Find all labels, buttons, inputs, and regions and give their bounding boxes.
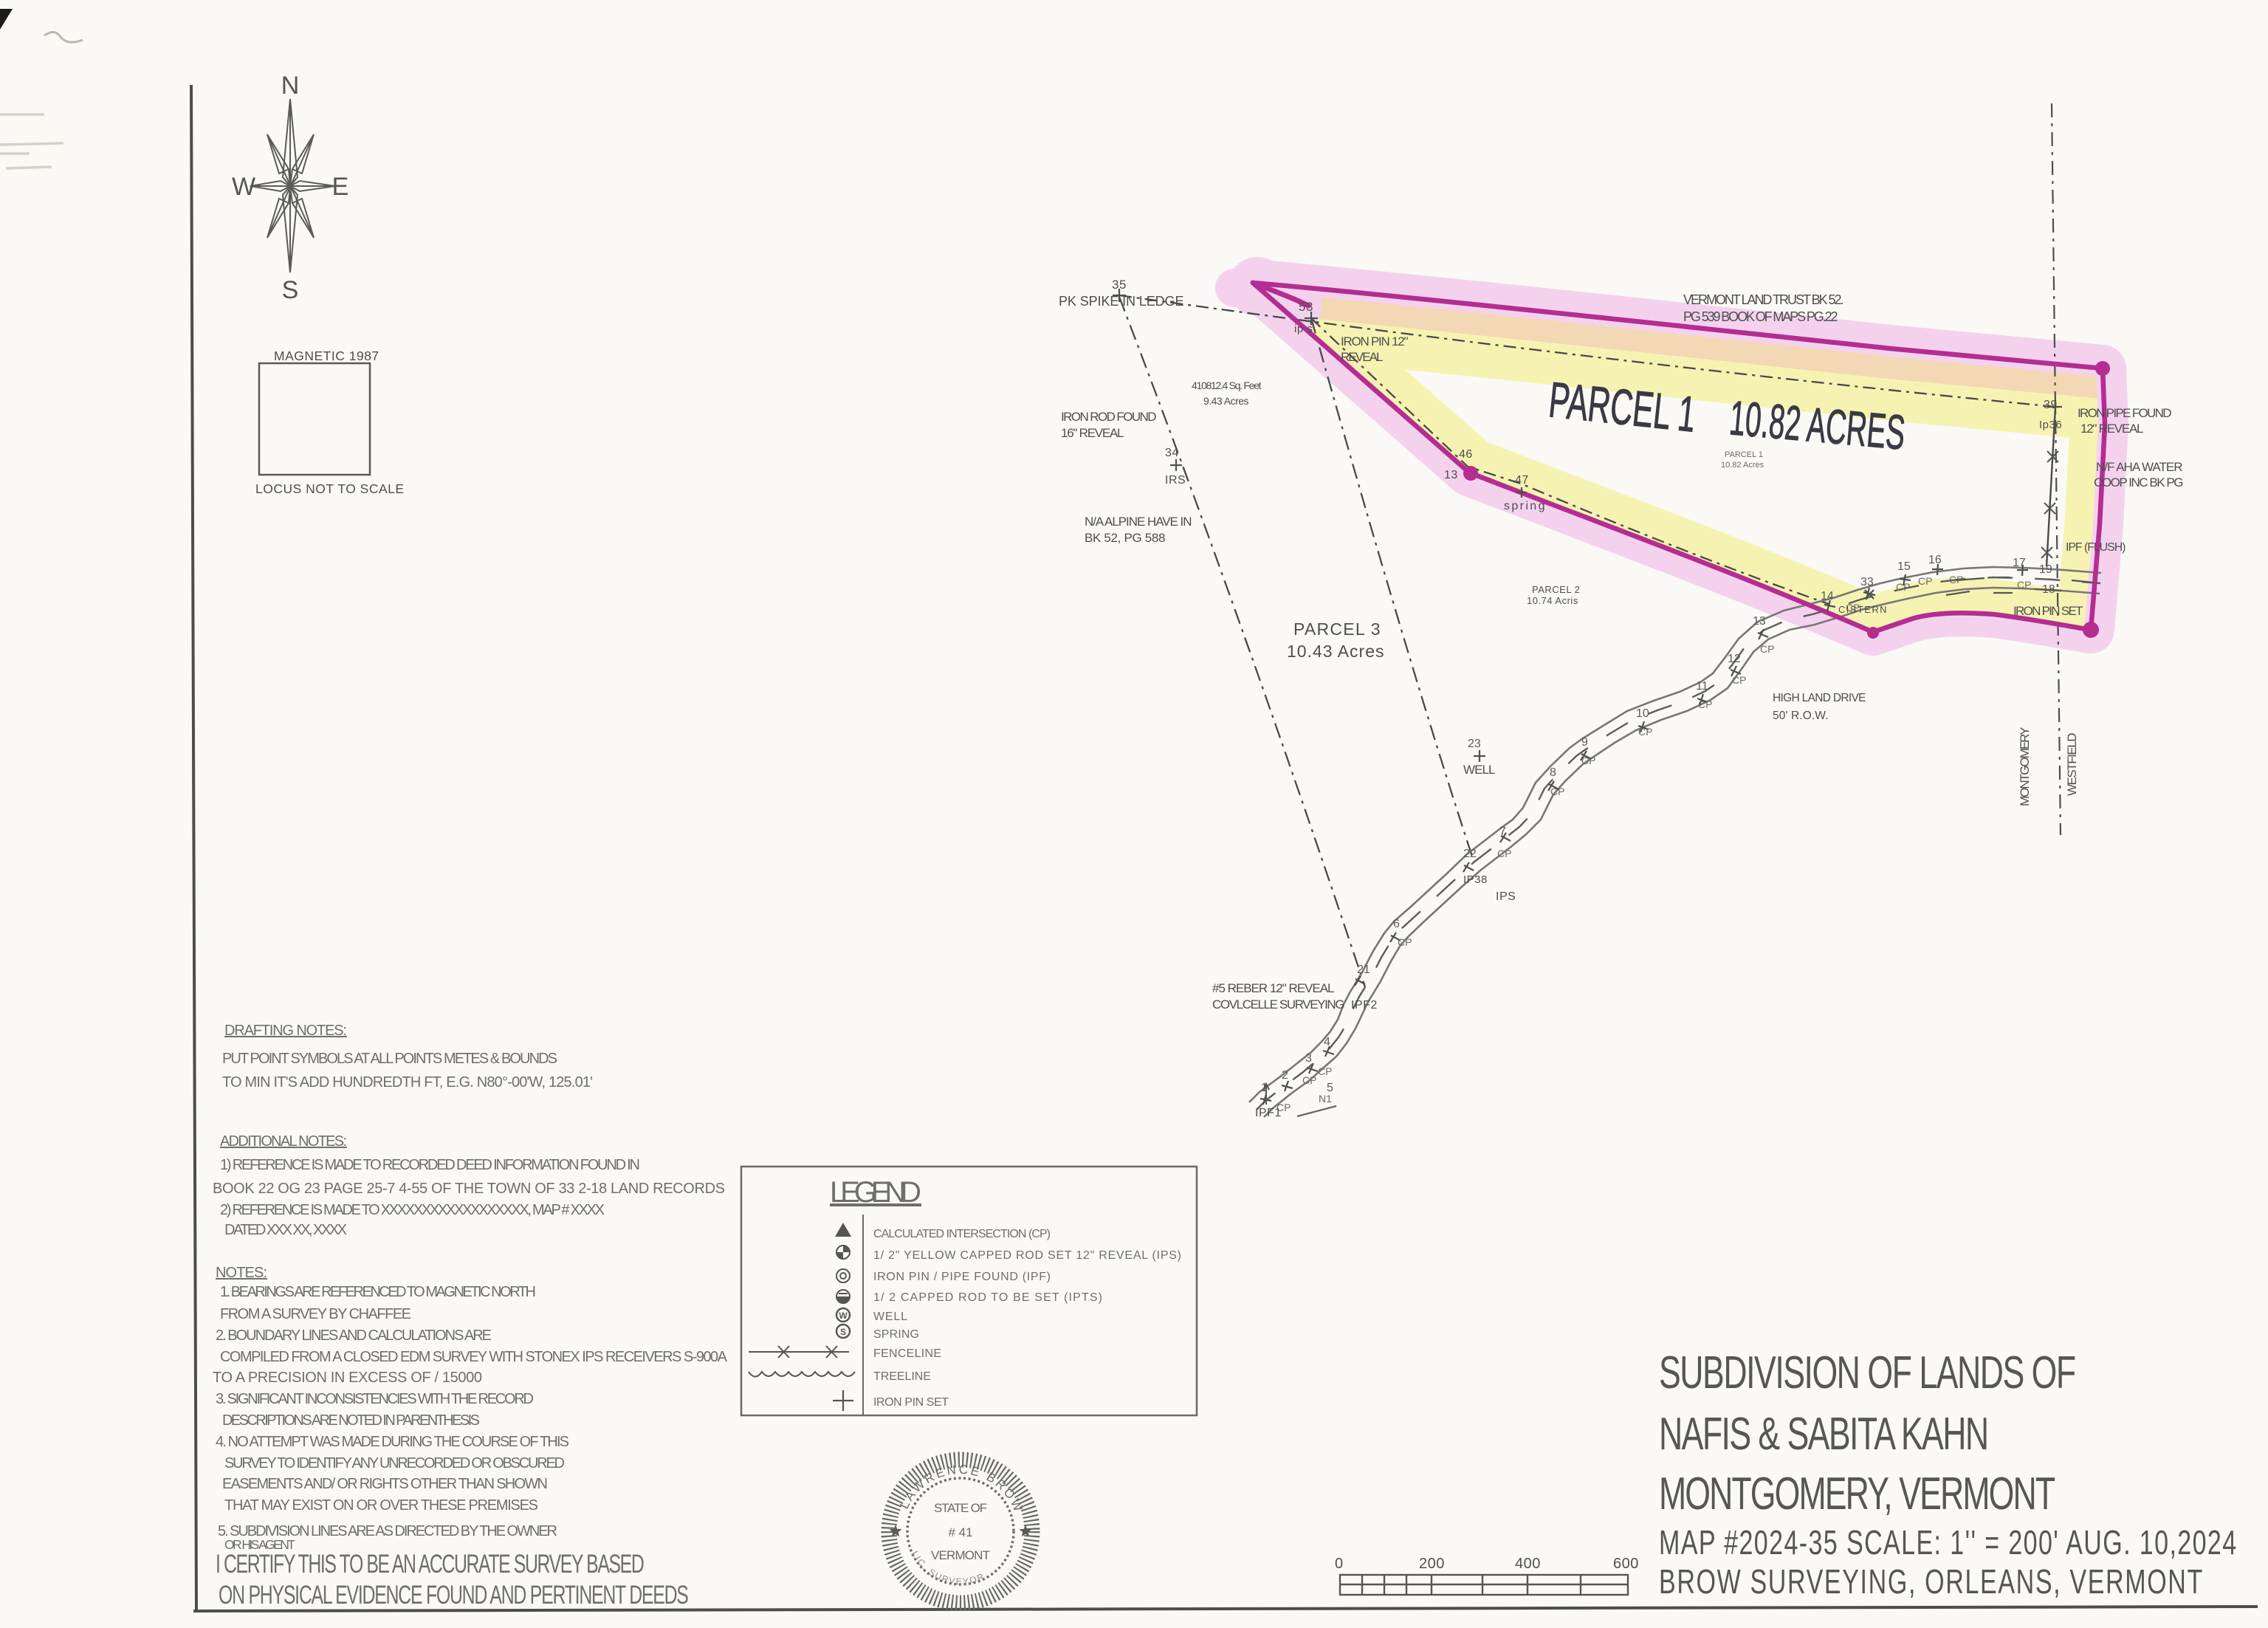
svg-text:13: 13 [1753,615,1766,628]
svg-text:IRON PIN 12": IRON PIN 12" [1341,334,1409,348]
svg-text:COMPILED FROM A CLOSED EDM SUR: COMPILED FROM A CLOSED EDM SURVEY WITH S… [220,1349,728,1365]
svg-text:410812.4 Sq. Feet: 410812.4 Sq. Feet [1192,379,1262,391]
svg-text:ADDITIONAL NOTES:: ADDITIONAL NOTES: [220,1133,347,1150]
svg-text:IRON PIN SET: IRON PIN SET [2013,604,2083,618]
svg-text:23: 23 [1468,738,1481,750]
svg-text:1. BEARINGS ARE REFERENCED TO: 1. BEARINGS ARE REFERENCED TO MAGNETIC N… [220,1284,536,1300]
svg-text:CP: CP [1760,643,1774,655]
svg-text:2. BOUNDARY LINES AND CALCULAT: 2. BOUNDARY LINES AND CALCULATIONS ARE [216,1328,492,1344]
svg-text:CP: CP [1581,755,1595,766]
svg-text:CP: CP [1302,1074,1316,1086]
svg-text:1) REFERENCE IS MADE TO RECORD: 1) REFERENCE IS MADE TO RECORDED DEED IN… [220,1157,640,1173]
svg-text:S: S [282,276,299,304]
svg-text:SPRING: SPRING [873,1328,919,1341]
svg-text:BK 52, PG 588: BK 52, PG 588 [1085,531,1166,545]
svg-text:DESCRIPTIONS ARE NOTED IN PARE: DESCRIPTIONS ARE NOTED IN PARENTHESIS [222,1412,480,1429]
svg-text:PARCEL 1: PARCEL 1 [1725,450,1763,459]
svg-text:VERMONT: VERMONT [931,1548,990,1562]
svg-text:47: 47 [1515,474,1529,487]
svg-text:14: 14 [1821,590,1834,602]
svg-text:PARCEL 3: PARCEL 3 [1293,619,1381,639]
svg-text:19: 19 [2039,563,2052,576]
svg-text:21: 21 [1357,964,1370,976]
svg-text:IPS: IPS [1496,890,1516,903]
svg-text:IRON PIPE FOUND: IRON PIPE FOUND [2078,406,2172,420]
svg-text:NAFIS & SABITA KAHN: NAFIS & SABITA KAHN [1659,1409,1989,1460]
svg-text:Ip36: Ip36 [2039,419,2062,431]
svg-text:PG 539 BOOK OF MAPS PG.22: PG 539 BOOK OF MAPS PG.22 [1683,309,1838,324]
svg-text:9: 9 [1581,736,1588,749]
svg-text:N/A ALPINE HAVE IN: N/A ALPINE HAVE IN [1085,515,1192,529]
svg-text:16: 16 [1928,554,1942,566]
svg-text:W: W [232,173,255,201]
svg-text:11: 11 [1696,680,1708,693]
svg-text:VERMONT LAND TRUST BK 52.: VERMONT LAND TRUST BK 52. [1683,292,1844,307]
svg-text:CP: CP [1497,848,1511,859]
svg-text:NOTES:: NOTES: [216,1265,267,1281]
svg-text:#5 REBER 12" REVEAL: #5 REBER 12" REVEAL [1212,981,1335,995]
svg-text:# 41: # 41 [948,1525,972,1539]
svg-text:CP: CP [1732,674,1746,686]
svg-text:N: N [281,72,300,100]
svg-text:HIGH LAND DRIVE: HIGH LAND DRIVE [1773,692,1866,704]
svg-text:COVLCELLE SURVEYING: COVLCELLE SURVEYING [1212,997,1345,1012]
svg-text:WESTFIELD: WESTFIELD [2065,732,2079,796]
svg-text:N/F AHA WATER: N/F AHA WATER [2096,460,2183,474]
svg-text:CP: CP [1638,726,1652,738]
svg-text:ON PHYSICAL EVIDENCE FOUND AND: ON PHYSICAL EVIDENCE FOUND AND PERTINENT… [219,1581,689,1610]
svg-text:10.74 Acris: 10.74 Acris [1527,595,1578,606]
svg-text:IRON PIN SET: IRON PIN SET [873,1396,949,1409]
svg-text:15: 15 [1897,560,1911,573]
svg-text:COOP INC BK PG: COOP INC BK PG [2094,475,2184,490]
svg-text:IP38: IP38 [1463,873,1488,886]
svg-text:IPF1: IPF1 [1255,1107,1282,1119]
svg-text:12" REVEAL: 12" REVEAL [2080,422,2144,436]
svg-text:E: E [332,173,349,201]
svg-text:10.82 Acres: 10.82 Acres [1721,461,1764,470]
svg-text:46: 46 [1459,448,1473,461]
svg-text:200: 200 [1419,1556,1445,1572]
svg-text:35: 35 [1112,278,1127,292]
svg-text:33: 33 [1860,576,1874,588]
svg-text:REVEAL: REVEAL [1341,350,1384,364]
svg-text:22: 22 [1463,848,1477,860]
svg-text:BOOK 22 OG 23 PAGE 25-7 4-55 O: BOOK 22 OG 23 PAGE 25-7 4-55 OF THE TOWN… [213,1181,725,1197]
svg-text:ip s: ip s [1294,323,1313,335]
svg-text:IRON PIN / PIPE FOUND (IPF): IRON PIN / PIPE FOUND (IPF) [873,1271,1051,1283]
svg-text:IRS: IRS [1165,474,1186,487]
svg-text:34: 34 [1165,447,1179,459]
svg-text:FROM A SURVEY BY CHAFFEE: FROM A SURVEY BY CHAFFEE [220,1306,411,1322]
svg-text:7: 7 [1499,825,1506,838]
svg-text:TREELINE: TREELINE [873,1370,931,1383]
svg-text:CP: CP [1398,936,1412,948]
svg-text:CP: CP [1550,786,1564,797]
svg-text:CISTERN: CISTERN [1838,604,1887,615]
svg-text:13: 13 [1444,469,1458,481]
svg-text:16" REVEAL: 16" REVEAL [1061,426,1124,440]
svg-text:MONTGOMERY: MONTGOMERY [2018,727,2032,806]
svg-text:N1: N1 [1319,1093,1332,1105]
svg-text:CALCULATED INTERSECTION (CP): CALCULATED INTERSECTION (CP) [873,1228,1051,1240]
svg-text:600: 600 [1613,1556,1639,1572]
svg-text:S: S [840,1327,846,1337]
svg-text:8: 8 [1550,766,1556,779]
svg-text:4: 4 [1324,1036,1330,1048]
svg-text:1/ 2" YELLOW CAPPED ROD SET 12: 1/ 2" YELLOW CAPPED ROD SET 12" REVEAL (… [873,1249,1181,1262]
svg-text:DATED XXX XX, XXXX: DATED XXX XX, XXXX [224,1222,347,1238]
svg-text:IPF2: IPF2 [1351,999,1378,1012]
svg-text:BROW SURVEYING, ORLEANS, VERMO: BROW SURVEYING, ORLEANS, VERMONT [1659,1562,2202,1601]
svg-text:2) REFERENCE IS MADE TO XXXXXX: 2) REFERENCE IS MADE TO XXXXXXXXXXXXXXXX… [220,1202,605,1218]
svg-text:IPF (FLUSH): IPF (FLUSH) [2066,541,2126,554]
svg-text:LEGEND: LEGEND [830,1176,921,1209]
svg-text:WELL: WELL [873,1311,907,1323]
svg-text:STATE OF: STATE OF [934,1501,987,1515]
svg-text:400: 400 [1515,1556,1541,1572]
svg-text:OR HIS AGENT: OR HIS AGENT [224,1537,295,1552]
svg-text:53: 53 [1299,300,1313,314]
svg-text:FENCELINE: FENCELINE [873,1347,941,1360]
svg-text:CP: CP [1318,1065,1332,1077]
svg-text:EASEMENTS AND/ OR RIGHTS OTHER: EASEMENTS AND/ OR RIGHTS OTHER THAN SHOW… [222,1476,548,1492]
svg-text:TO A PRECISION IN EXCESS OF /: TO A PRECISION IN EXCESS OF / 15000 [213,1370,482,1386]
svg-text:9.43 Acres: 9.43 Acres [1203,395,1249,407]
svg-text:THAT MAY EXIST ON OR OVER THES: THAT MAY EXIST ON OR OVER THESE PREMISES [224,1497,538,1514]
svg-text:3: 3 [1305,1052,1312,1065]
svg-text:CP: CP [1698,698,1712,710]
svg-text:SUBDIVISION OF LANDS OF: SUBDIVISION OF LANDS OF [1659,1347,2076,1398]
svg-text:50' R.O.W.: 50' R.O.W. [1773,710,1829,722]
svg-text:6: 6 [1393,918,1400,930]
svg-text:10: 10 [1636,707,1649,720]
svg-text:2: 2 [1282,1069,1288,1082]
svg-text:IRON ROD FOUND: IRON ROD FOUND [1061,410,1157,424]
svg-text:CP: CP [2017,579,2031,591]
svg-text:I CERTIFY THIS TO BE AN ACCURA: I CERTIFY THIS TO BE AN ACCURATE SURVEY … [216,1550,645,1579]
svg-text:3. SIGNIFICANT INCONSISTENCIES: 3. SIGNIFICANT INCONSISTENCIES WITH THE … [216,1391,534,1407]
svg-text:39: 39 [2044,399,2058,411]
svg-text:MONTGOMERY, VERMONT: MONTGOMERY, VERMONT [1659,1469,2055,1519]
svg-text:PUT POINT SYMBOLS AT ALL POINT: PUT POINT SYMBOLS AT ALL POINTS METES & … [222,1051,557,1067]
svg-text:MAGNETIC 1987: MAGNETIC 1987 [274,348,379,363]
svg-text:CP: CP [1896,581,1910,593]
svg-text:MAP #2024-35 SCALE: 1'' = 200': MAP #2024-35 SCALE: 1'' = 200' AUG. 10,2… [1659,1523,2236,1562]
svg-text:W: W [839,1311,848,1321]
svg-text:4. NO ATTEMPT WAS MADE DURING: 4. NO ATTEMPT WAS MADE DURING THE COURSE… [216,1434,569,1450]
svg-text:PARCEL 2: PARCEL 2 [1532,584,1580,595]
svg-text:TO MIN IT'S ADD HUNDREDTH FT,: TO MIN IT'S ADD HUNDREDTH FT, E.G. N80°-… [222,1074,593,1091]
svg-text:10.43 Acres: 10.43 Acres [1287,642,1384,661]
svg-text:SURVEY TO IDENTIFY ANY UNRECOR: SURVEY TO IDENTIFY ANY UNRECORDED OR OBS… [224,1455,565,1471]
svg-text:DRAFTING NOTES:: DRAFTING NOTES: [224,1023,347,1039]
svg-text:12: 12 [1728,653,1741,665]
svg-text:0: 0 [1335,1556,1344,1572]
svg-text:LOCUS NOT TO SCALE: LOCUS NOT TO SCALE [255,481,405,496]
svg-text:17: 17 [2013,557,2026,569]
svg-text:WELL: WELL [1463,763,1496,777]
svg-text:PK SPIKE IN LEDGE: PK SPIKE IN LEDGE [1059,294,1184,309]
svg-text:CP: CP [1918,575,1932,587]
